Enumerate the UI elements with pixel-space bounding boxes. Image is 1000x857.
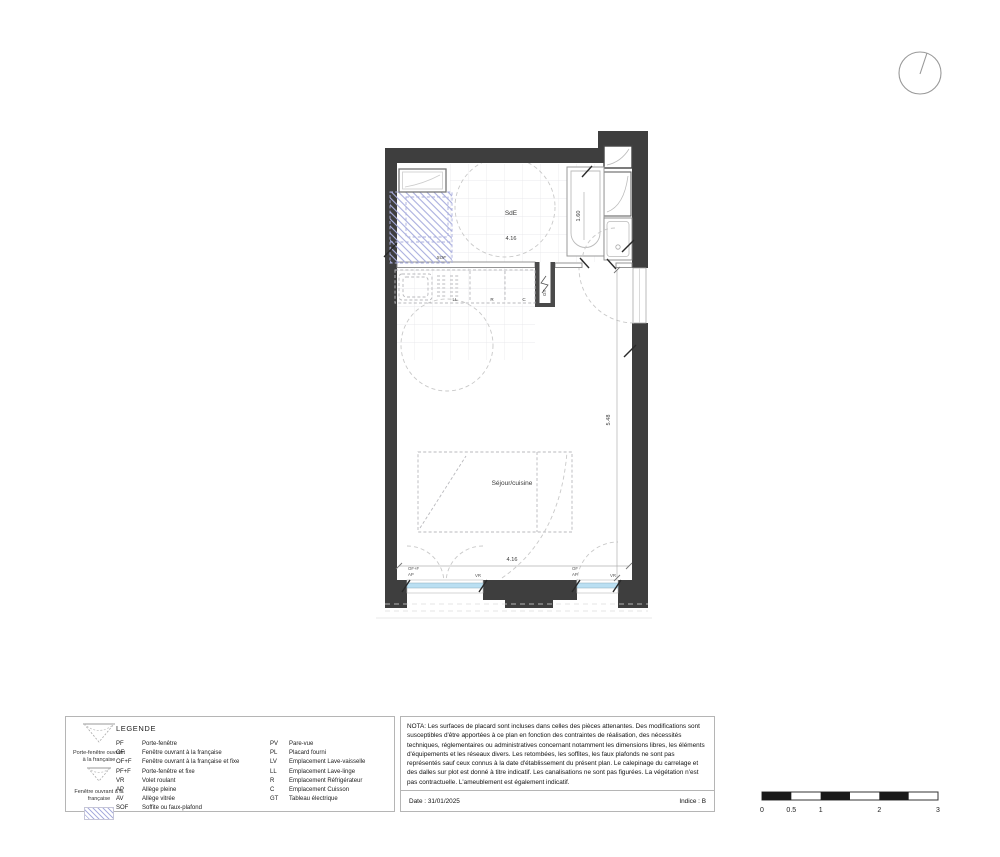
north-compass-icon (899, 52, 941, 94)
door-stop-tick (607, 259, 616, 269)
sof-zone: SOF (390, 192, 452, 263)
furniture-outline (418, 452, 572, 532)
washing-machine-label: LL (452, 297, 458, 302)
legend-entry: VRVolet roulant (116, 777, 268, 786)
room-label-sde: SdE (505, 210, 518, 217)
door-window-french-swing-icon (82, 722, 116, 744)
legend-entry: APAllège pleine (116, 786, 268, 795)
scale-bar: 0 0.5 1 2 3 (760, 792, 940, 814)
legend-entry: PLPlacard fourni (270, 749, 392, 758)
scale-tick-0: 0 (760, 807, 764, 814)
bathtub (567, 167, 604, 256)
scale-tick-1: 1 (819, 807, 823, 814)
nota-footer: Date : 31/01/2025 Indice : B (401, 790, 714, 811)
sde-width-dim: 4.16 (506, 236, 517, 242)
legend-entry: PFPorte-fenêtre (116, 740, 268, 749)
window-french-swing-icon (86, 766, 112, 783)
window-right-type: OF (572, 566, 578, 571)
sof-label: SOF (437, 255, 448, 260)
window-left-swing (407, 546, 444, 583)
legend-entry: AVAllège vitrée (116, 795, 268, 804)
legend-panel: Porte-fenêtre ouvrant à la française Fen… (65, 716, 395, 812)
window-left-type: OF+F (408, 566, 419, 571)
entry-door (579, 268, 646, 323)
plan-indice: Indice : B (679, 798, 706, 805)
legend-entry: PVPare-vue (270, 740, 392, 749)
scale-tick-3: 3 (936, 807, 940, 814)
window-right-sill: AP (572, 572, 578, 577)
kitchen-tile-grid (395, 268, 535, 360)
radiator (399, 169, 446, 192)
gt-label: GT (542, 289, 547, 296)
floor-plan-page: SOF 1.60 GT (0, 0, 1000, 857)
nota-text: NOTA: Les surfaces de placard sont inclu… (401, 717, 714, 787)
wall-bottom-middle (483, 580, 577, 600)
legend-column-2: PVPare-vue PLPlacard fourni LVEmplacemen… (270, 740, 392, 804)
legend-entry: OFFenêtre ouvrant à la française (116, 749, 268, 758)
partition-entry-right (616, 263, 632, 268)
legend-entry: GTTableau électrique (270, 795, 392, 804)
legend-entry: CEmplacement Cuisson (270, 786, 392, 795)
wall-right-upper (632, 163, 648, 268)
legend-entry: SOFSoffite ou faux-plafond (116, 804, 268, 813)
legend-entry: REmplacement Réfrigérateur (270, 777, 392, 786)
nota-panel: NOTA: Les surfaces de placard sont inclu… (400, 716, 715, 812)
sof-hatch-sample-icon (84, 807, 114, 820)
window-left-shutter: VR (475, 573, 481, 578)
duct-shaft-upper (604, 146, 632, 168)
legend-entry: LVEmplacement Lave-vaisselle (270, 758, 392, 767)
legend-entry: PF+FPorte-fenêtre et fixe (116, 768, 268, 777)
window-left-sill: AP (408, 572, 414, 577)
wall-right-lower (632, 323, 648, 580)
partition-entry-left (555, 263, 582, 268)
duct-shaft-lower (604, 172, 631, 216)
bath-dim-label: 1.60 (576, 211, 582, 222)
sejour-height-dim: 5.48 (606, 415, 612, 426)
legend-title: LEGENDE (116, 724, 156, 733)
sejour-width-dim: 4.16 (507, 557, 518, 563)
legend-column-1: PFPorte-fenêtre OFFenêtre ouvrant à la f… (116, 740, 268, 814)
room-label-sejour: Séjour/cuisine (492, 480, 533, 487)
window-left (407, 580, 483, 593)
scale-tick-2: 2 (877, 807, 881, 814)
window-right (577, 580, 618, 593)
window-right-shutter: VR (610, 573, 616, 578)
legend-entry: OF+FFenêtre ouvrant à la française et fi… (116, 758, 268, 767)
washbasin (604, 218, 632, 260)
scale-tick-05: 0.5 (786, 807, 796, 814)
legend-entry: LLEmplacement Lave-linge (270, 768, 392, 777)
plan-date: Date : 31/01/2025 (409, 798, 460, 805)
wall-top (385, 148, 598, 163)
